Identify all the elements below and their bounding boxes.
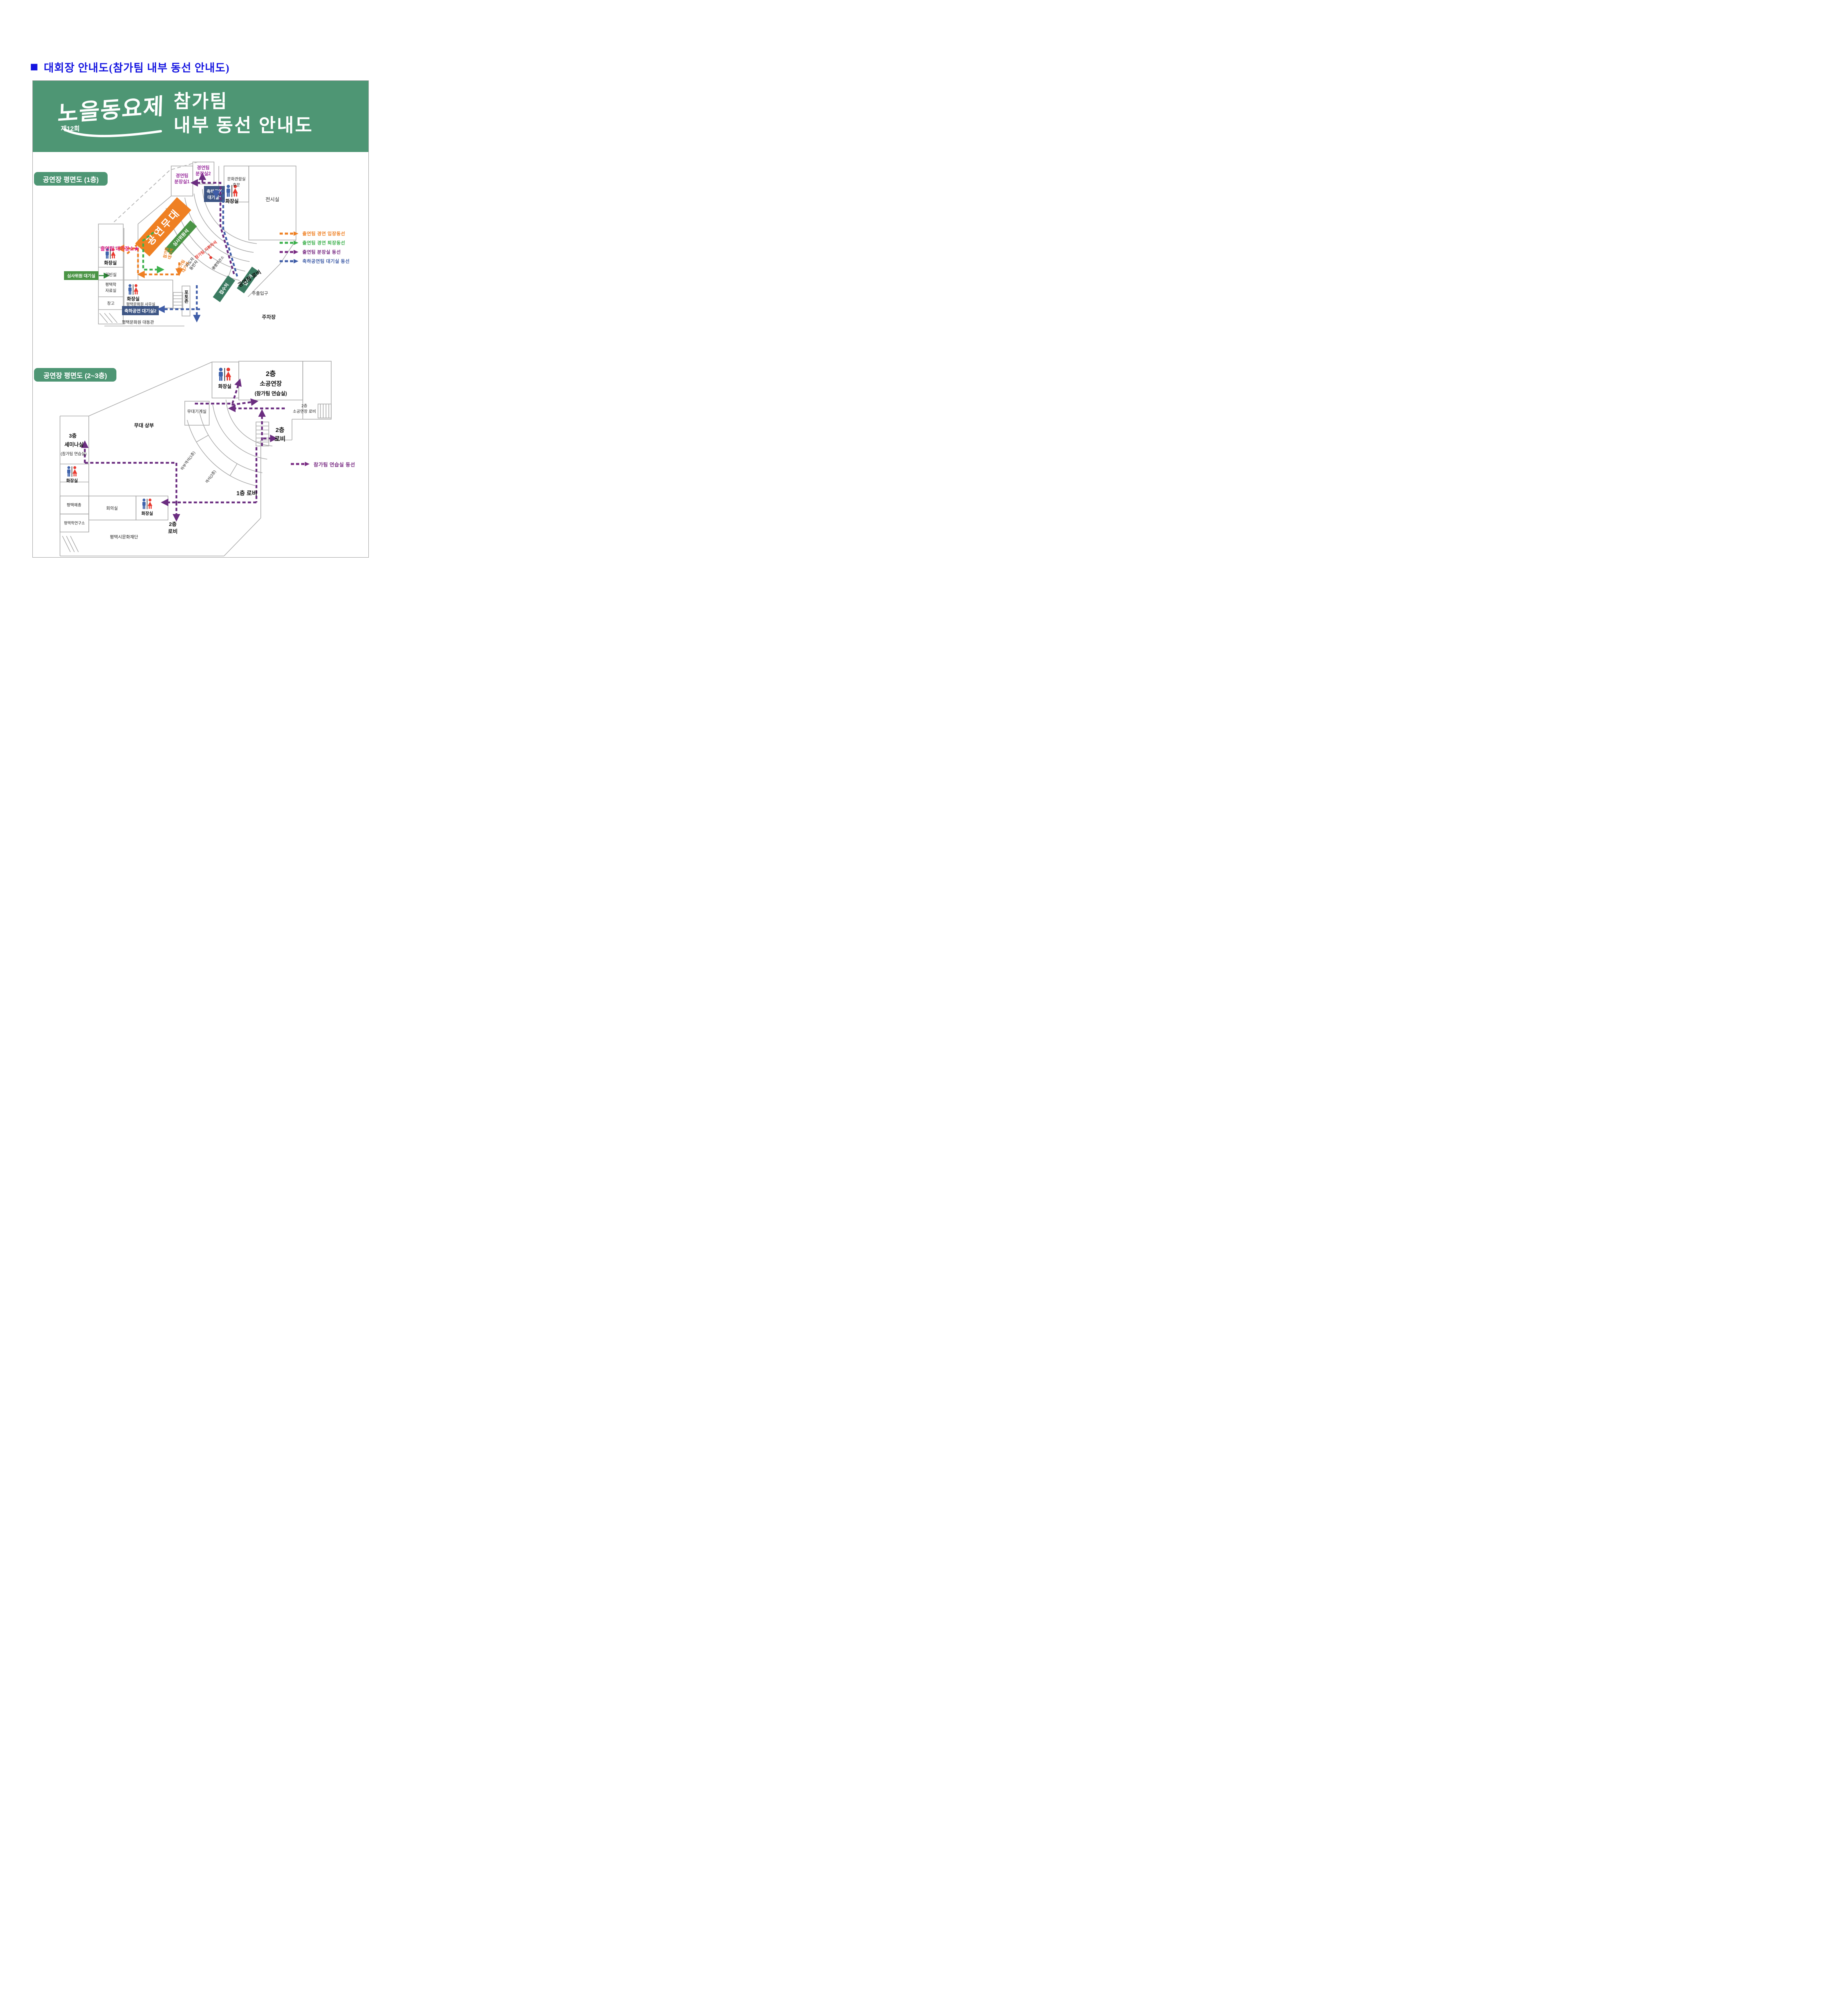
- festival-edition: 제12회: [61, 123, 80, 133]
- legend-label: 출연팀 경연 입장동선: [302, 230, 345, 237]
- parking-label: 주차장: [262, 314, 276, 320]
- legend-item-entry: 출연팀 경연 입장동선: [279, 230, 350, 237]
- lobby2f-line2: 로비: [274, 436, 286, 442]
- legend-label: 참가팀 연습실 동선: [314, 460, 355, 468]
- lower-seats-label: 하부객석(1층): [180, 450, 196, 471]
- plan1-legend: 출연팀 경연 입장동선 출연팀 경연 퇴장동선 출연팀 분장실 동선 축하공연팀…: [279, 230, 350, 264]
- toilet2-left-label: 화장실: [66, 478, 78, 483]
- dressing1-line2: 분장실1: [174, 179, 190, 184]
- judge-waitroom-label: 심사위원 대기실: [67, 273, 96, 278]
- small-lobby-line2: 소공연장 로비: [293, 409, 316, 414]
- toilet2-bottom-icon: [142, 498, 152, 509]
- lobby1f-label: 1층 로비: [236, 490, 257, 497]
- plan2-legend: 참가팀 연습실 동선: [290, 461, 355, 467]
- seminar-line2: 세미나실: [64, 442, 84, 448]
- floorplan-2f3f: 화장실 화장실 화장실 2층 소공연장 (참가팀 연습실) 2층 소공연장 로비…: [32, 344, 368, 557]
- banner-title: 참가팀 내부 동선 안내도: [174, 90, 313, 138]
- photozone-label: 포토존: [184, 290, 188, 303]
- seminar-line3: (참가팀 연습실): [61, 452, 87, 456]
- stage-upper-label: 무대 상부: [134, 422, 154, 428]
- small-hall-line2: 소공연장: [260, 380, 282, 387]
- toilet2-left-icon: [67, 466, 77, 477]
- main-entrance-label: 주출입구: [252, 291, 268, 296]
- celebration-waitroom2-label: 축하공연 대기실2: [124, 308, 156, 314]
- foundation-label: 평택시문화재단: [110, 534, 138, 540]
- vip-room-label: 귀빈실: [105, 272, 117, 277]
- festival-banner: 노을동요제 제12회 참가팀 내부 동선 안내도: [33, 81, 368, 152]
- banner-title-line2: 내부 동선 안내도: [174, 114, 313, 138]
- dressing2-line2: 분장실2: [196, 171, 211, 176]
- legend-label: 축하공연팀 대기실 동선: [302, 258, 350, 264]
- conductor-seat-label: 참가팀 지휘자석: [194, 240, 218, 260]
- institute-label: 평택학연구소: [64, 521, 85, 526]
- small-hall-line3: (참가팀 연습실): [255, 390, 287, 396]
- toilet-center-label: 화장실: [127, 296, 140, 302]
- lobby2f-bottom-line2: 로비: [168, 528, 178, 534]
- dressing2-line1: 경연팀: [197, 165, 210, 170]
- waiting-area-label: 출연팀 대기장소★: [100, 246, 139, 252]
- document-page: ■ 대회장 안내도(참가팀 내부 동선 안내도) 노을동요제 제12회 참가팀 …: [0, 0, 440, 622]
- celebration-waitroom2-box: 축하공연 대기실2: [122, 306, 159, 315]
- celebration-waitroom1-line2: 대기실1: [208, 195, 222, 200]
- exhibition-label: 전시실: [266, 197, 280, 202]
- culture-backdoor-line1: 문화관람실: [227, 176, 246, 182]
- machine-room-label: 무대기계실: [187, 409, 206, 414]
- stage-box: 공연무대: [135, 197, 191, 256]
- legend-label: 출연팀 분장실 동선: [302, 249, 341, 255]
- storage-label: 물품보관소: [211, 255, 225, 270]
- small-lobby-line1: 2층: [302, 404, 308, 408]
- route-to-small-hall: [232, 382, 239, 404]
- toilet-left-label: 화장실: [104, 260, 117, 266]
- archive-line2: 자료실: [105, 288, 116, 293]
- legend-arrow-purple-icon: [279, 249, 299, 255]
- heading-bullet-icon: ■: [30, 61, 38, 73]
- warehouse-label: 창고: [107, 301, 114, 306]
- legend-item-dressing: 출연팀 분장실 동선: [279, 249, 350, 255]
- hall-label: 평택문화원 대동관: [122, 320, 154, 325]
- dressing1-line1: 경연팀: [176, 173, 188, 178]
- toilet2-top-icon: [219, 368, 231, 381]
- conductor-marker-dot: [210, 256, 212, 259]
- small-hall-line1: 2층: [266, 370, 276, 378]
- toilet-top-label: 화장실: [225, 198, 238, 204]
- lobby2f-line1: 2층: [276, 427, 284, 434]
- plan2-room-labels: 2층 소공연장 (참가팀 연습실) 2층 소공연장 로비 무대기계실 무대 상부…: [61, 370, 316, 540]
- judge-waitroom-box: 심사위원 대기실: [64, 271, 107, 280]
- legend-arrow-orange-icon: [279, 231, 299, 236]
- legend-label: 출연팀 경연 퇴장동선: [302, 240, 345, 246]
- toilet2-bottom-label: 화장실: [142, 511, 153, 516]
- legend-item-exit: 출연팀 경연 퇴장동선: [279, 240, 350, 246]
- page-heading: ■ 대회장 안내도(참가팀 내부 동선 안내도): [30, 59, 230, 75]
- toilet-center-icon: [128, 284, 138, 295]
- toilet2-top-label: 화장실: [218, 383, 231, 389]
- plan2-walls: [60, 361, 331, 556]
- celebration-waitroom1-box: 축하공연 대기실1: [204, 186, 225, 202]
- route-to-small-lobby: [232, 402, 255, 405]
- page-title: 대회장 안내도(참가팀 내부 동선 안내도): [44, 59, 230, 75]
- office-label: 평택문화원 사무실: [126, 302, 156, 307]
- meeting-room-label: 회의실: [106, 506, 118, 511]
- culture-backdoor-line2: 후문: [233, 183, 240, 188]
- seats2f-label: 객석(2층): [205, 470, 217, 484]
- festival-logo: 노을동요제: [57, 88, 165, 128]
- archive-line1: 평택학: [105, 282, 116, 287]
- arts-label: 평택예총: [67, 503, 82, 508]
- legend-arrow-purple2-icon: [290, 461, 310, 467]
- reception-box-1: 접수처: [213, 276, 235, 302]
- legend-item-practice: 참가팀 연습실 동선: [290, 461, 355, 467]
- legend-arrow-blue-icon: [279, 258, 299, 264]
- legend-arrow-green-icon: [279, 240, 299, 246]
- banner-title-line1: 참가팀: [174, 90, 313, 114]
- lobby2f-bottom-line1: 2층: [169, 521, 176, 527]
- legend-item-celebration: 축하공연팀 대기실 동선: [279, 258, 350, 264]
- seminar-line1: 3층: [69, 433, 76, 439]
